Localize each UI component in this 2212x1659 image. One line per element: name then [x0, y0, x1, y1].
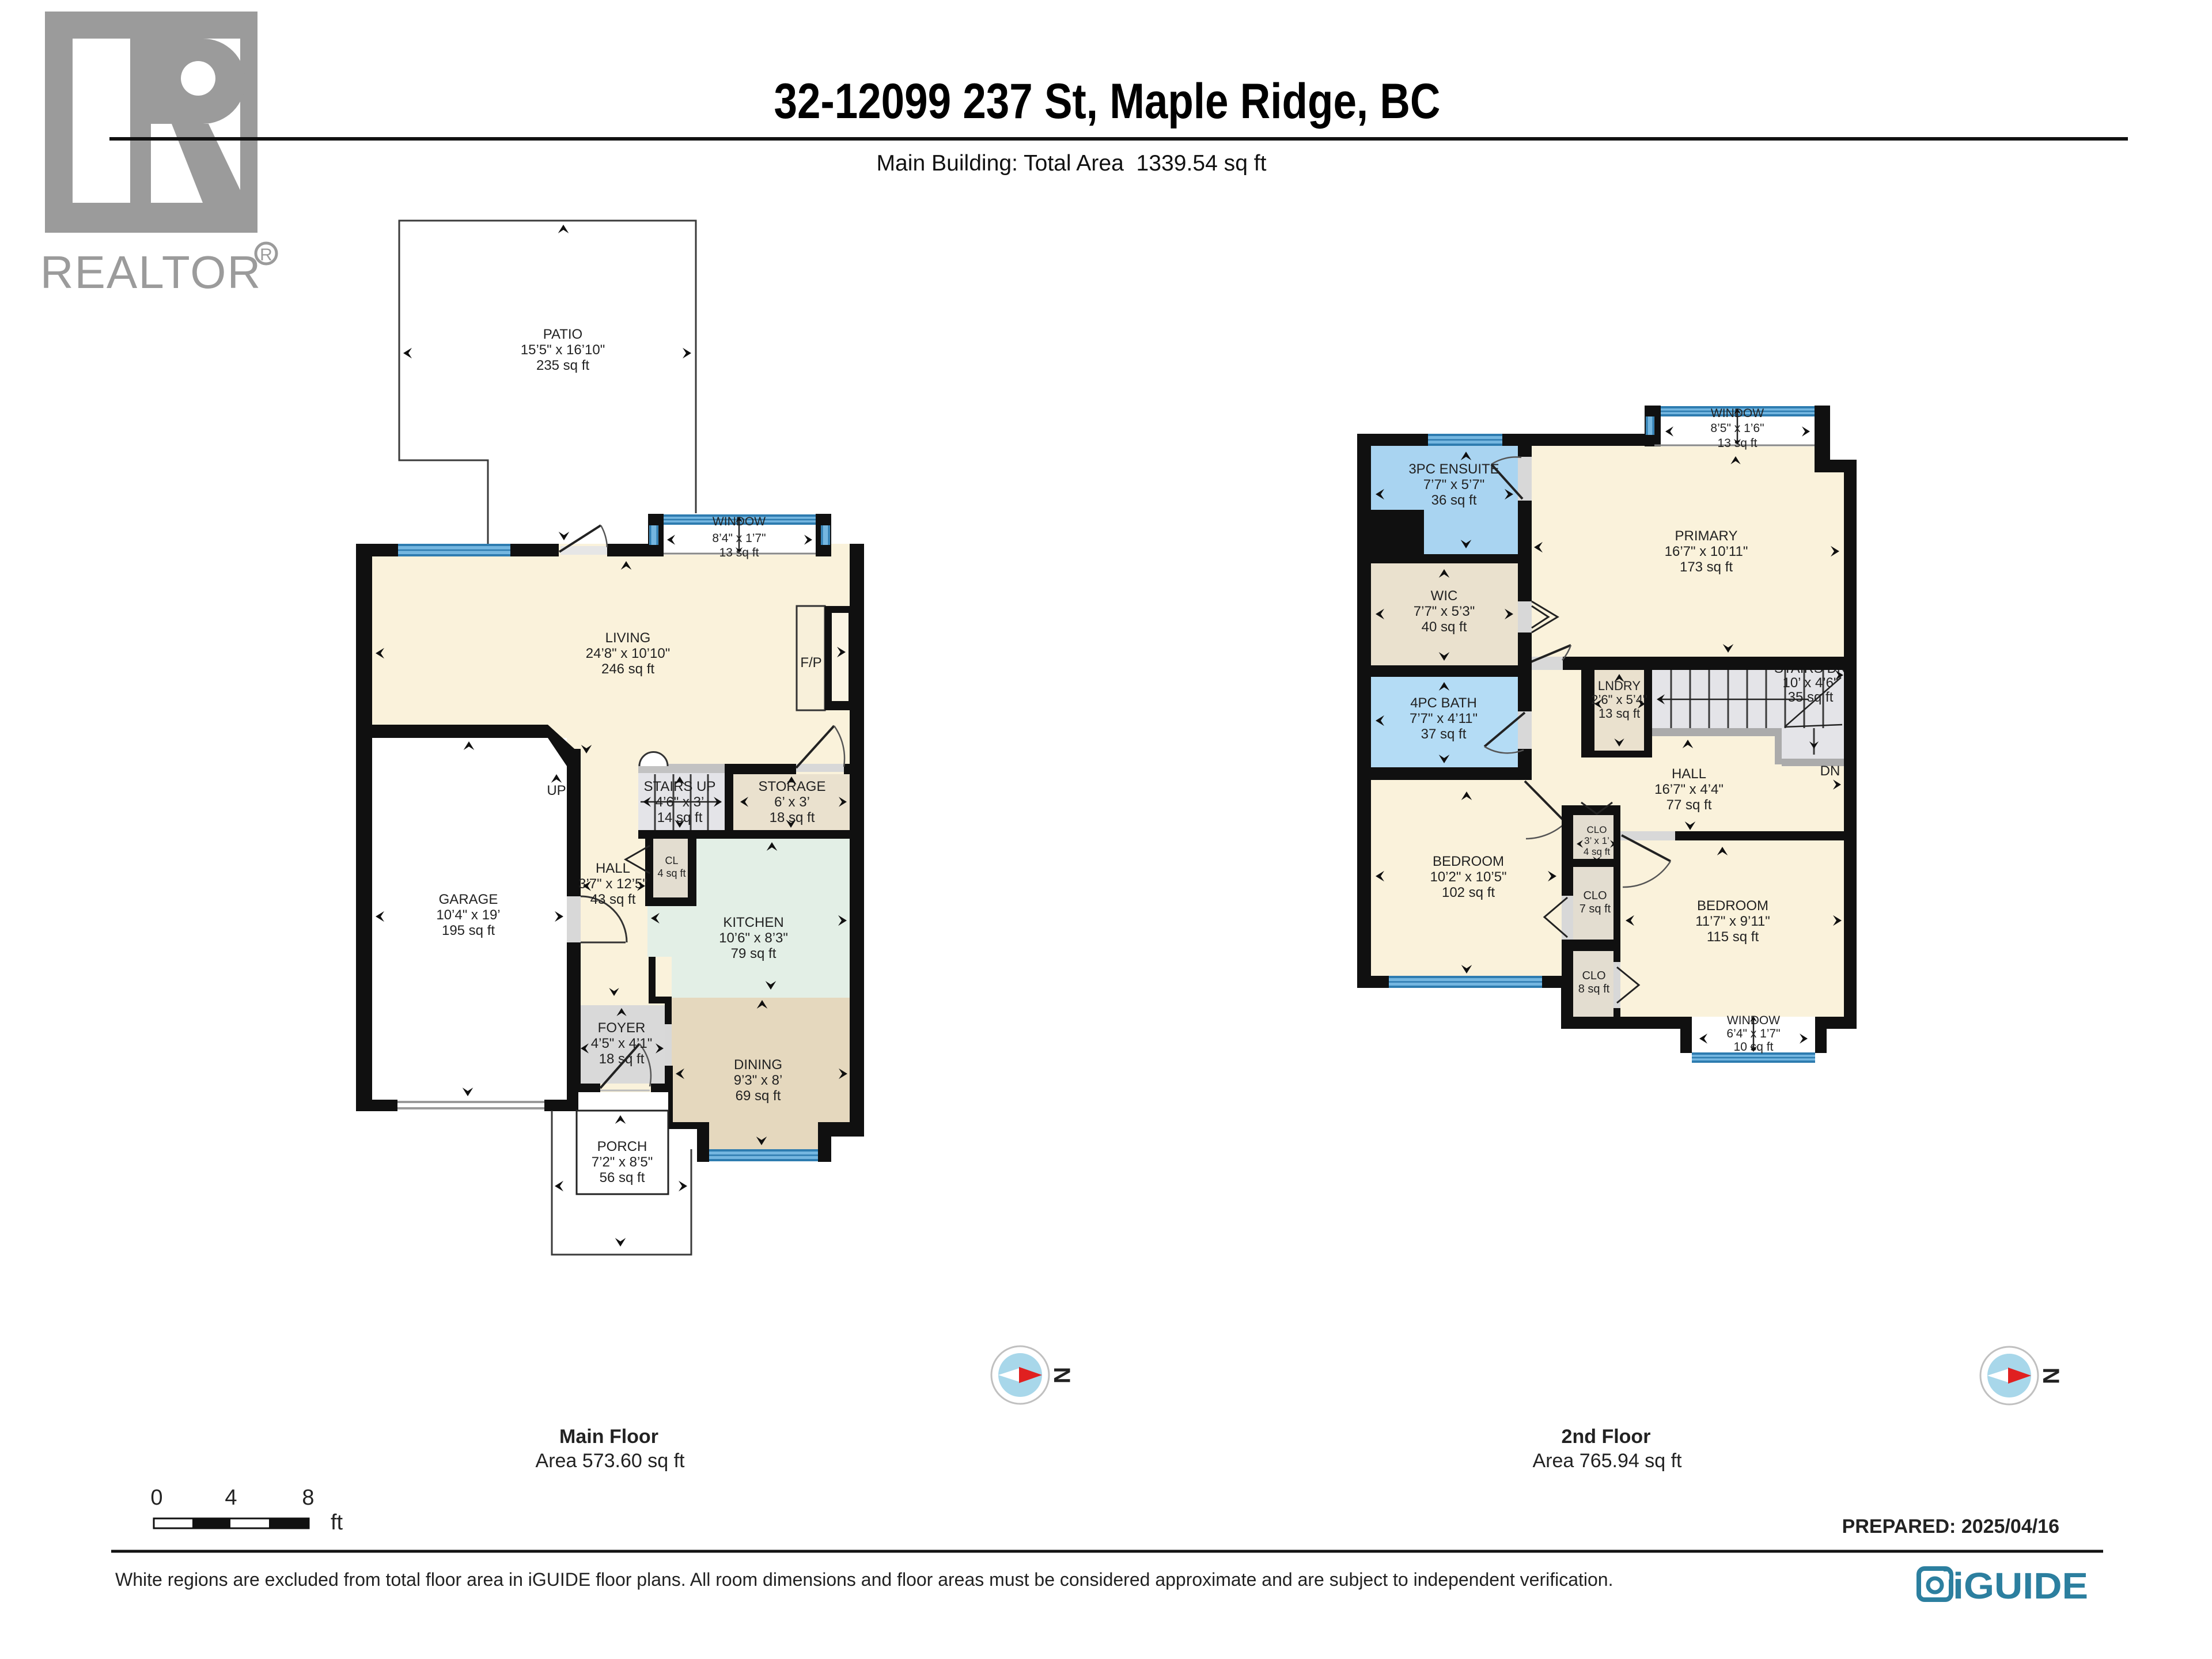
svg-text:235 sq ft: 235 sq ft	[536, 358, 589, 373]
svg-text:PORCH: PORCH	[597, 1139, 647, 1154]
svg-text:10’2" x 10’5": 10’2" x 10’5"	[1430, 869, 1506, 885]
svg-text:77 sq ft: 77 sq ft	[1666, 797, 1712, 813]
svg-text:37 sq ft: 37 sq ft	[1421, 726, 1467, 742]
svg-text:UP: UP	[547, 783, 566, 798]
svg-text:HALL: HALL	[1672, 766, 1706, 782]
svg-text:N: N	[1049, 1367, 1074, 1384]
svg-text:FOYER: FOYER	[598, 1020, 646, 1036]
svg-text:32-12099 237 St, Maple Ridge,: 32-12099 237 St, Maple Ridge, BC	[774, 74, 1441, 129]
svg-text:White regions are excluded fro: White regions are excluded from total fl…	[115, 1569, 1613, 1590]
svg-text:4: 4	[225, 1486, 237, 1510]
svg-text:LIVING: LIVING	[605, 630, 651, 646]
svg-text:CLO: CLO	[1582, 969, 1605, 982]
svg-text:4’5" x 4’1": 4’5" x 4’1"	[591, 1036, 652, 1051]
svg-text:LNDRY: LNDRY	[1598, 679, 1641, 693]
svg-text:35 sq ft: 35 sq ft	[1788, 690, 1834, 705]
svg-text:4 sq ft: 4 sq ft	[657, 868, 685, 879]
svg-text:18 sq ft: 18 sq ft	[599, 1051, 645, 1067]
svg-text:8: 8	[302, 1486, 314, 1510]
svg-text:PRIMARY: PRIMARY	[1675, 528, 1738, 544]
svg-text:7 sq ft: 7 sq ft	[1580, 903, 1611, 915]
svg-text:3’ x 1’: 3’ x 1’	[1584, 835, 1609, 846]
svg-text:Main Floor: Main Floor	[559, 1426, 658, 1448]
svg-text:16’7" x 4’4": 16’7" x 4’4"	[1654, 782, 1724, 797]
svg-text:REALTOR: REALTOR	[40, 247, 262, 298]
svg-text:16’7" x 10’11": 16’7" x 10’11"	[1665, 544, 1748, 559]
svg-text:10’6" x 8’3": 10’6" x 8’3"	[719, 930, 788, 946]
svg-text:115 sq ft: 115 sq ft	[1707, 929, 1759, 945]
svg-text:CLO: CLO	[1587, 824, 1607, 835]
svg-text:CLO: CLO	[1583, 889, 1607, 902]
svg-text:0: 0	[150, 1486, 162, 1510]
svg-text:PREPARED: 2025/04/16: PREPARED: 2025/04/16	[1842, 1516, 2059, 1537]
svg-text:HALL: HALL	[596, 861, 630, 876]
svg-text:Main Building: Total Area 133: Main Building: Total Area 1339.54 sq ft	[877, 151, 1267, 176]
svg-text:2’6" x 5’4": 2’6" x 5’4"	[1591, 692, 1647, 707]
svg-text:N: N	[2038, 1368, 2063, 1384]
svg-text:11’7" x 9’11": 11’7" x 9’11"	[1695, 914, 1770, 929]
svg-text:6’ x 3’: 6’ x 3’	[774, 794, 810, 810]
svg-text:24’8" x 10’10": 24’8" x 10’10"	[586, 646, 670, 661]
svg-text:79 sq ft: 79 sq ft	[731, 946, 777, 961]
svg-text:173 sq ft: 173 sq ft	[1680, 559, 1733, 575]
svg-text:8 sq ft: 8 sq ft	[1578, 983, 1610, 995]
svg-text:40 sq ft: 40 sq ft	[1422, 619, 1467, 635]
svg-text:195 sq ft: 195 sq ft	[442, 923, 495, 938]
svg-text:DN: DN	[1820, 763, 1840, 779]
svg-text:BEDROOM: BEDROOM	[1433, 854, 1504, 869]
svg-text:246 sq ft: 246 sq ft	[601, 661, 654, 677]
svg-text:Area 573.60 sq ft: Area 573.60 sq ft	[536, 1450, 685, 1472]
svg-text:PATIO: PATIO	[543, 327, 582, 342]
svg-text:10’ x 4’6": 10’ x 4’6"	[1782, 675, 1838, 691]
svg-text:7’7" x 4’11": 7’7" x 4’11"	[1410, 711, 1478, 726]
svg-text:F/P: F/P	[800, 655, 821, 671]
svg-text:KITCHEN: KITCHEN	[723, 915, 783, 930]
svg-text:2nd Floor: 2nd Floor	[1562, 1426, 1651, 1448]
svg-text:GARAGE: GARAGE	[439, 892, 498, 907]
svg-text:15’5" x 16’10": 15’5" x 16’10"	[521, 342, 605, 358]
svg-text:4PC BATH: 4PC BATH	[1410, 695, 1477, 711]
svg-text:BEDROOM: BEDROOM	[1697, 898, 1768, 914]
svg-text:WIC: WIC	[1431, 588, 1458, 604]
svg-text:69 sq ft: 69 sq ft	[736, 1088, 781, 1104]
svg-text:56 sq ft: 56 sq ft	[600, 1170, 645, 1185]
svg-text:9’3" x 8’: 9’3" x 8’	[734, 1073, 783, 1088]
svg-text:CL: CL	[665, 855, 678, 866]
svg-text:4 sq ft: 4 sq ft	[1584, 846, 1611, 857]
svg-text:7’2" x 8’5": 7’2" x 8’5"	[592, 1154, 653, 1170]
svg-text:7’7" x 5’7": 7’7" x 5’7"	[1423, 477, 1484, 493]
svg-text:ft: ft	[331, 1510, 343, 1535]
svg-text:7’7" x 5’3": 7’7" x 5’3"	[1414, 604, 1475, 619]
svg-text:36 sq ft: 36 sq ft	[1431, 493, 1477, 508]
svg-text:4’6" x 3’: 4’6" x 3’	[656, 794, 704, 810]
svg-text:DINING: DINING	[734, 1057, 782, 1073]
svg-text:43 sq ft: 43 sq ft	[590, 892, 636, 907]
svg-text:iGUIDE: iGUIDE	[1953, 1565, 2088, 1607]
svg-text:102 sq ft: 102 sq ft	[1442, 885, 1495, 900]
svg-text:3PC ENSUITE: 3PC ENSUITE	[1408, 461, 1499, 477]
svg-text:10’4" x 19’: 10’4" x 19’	[436, 907, 500, 923]
svg-text:R: R	[260, 245, 272, 264]
svg-text:Area 765.94 sq ft: Area 765.94 sq ft	[1533, 1450, 1683, 1472]
svg-text:13 sq ft: 13 sq ft	[1599, 706, 1640, 721]
